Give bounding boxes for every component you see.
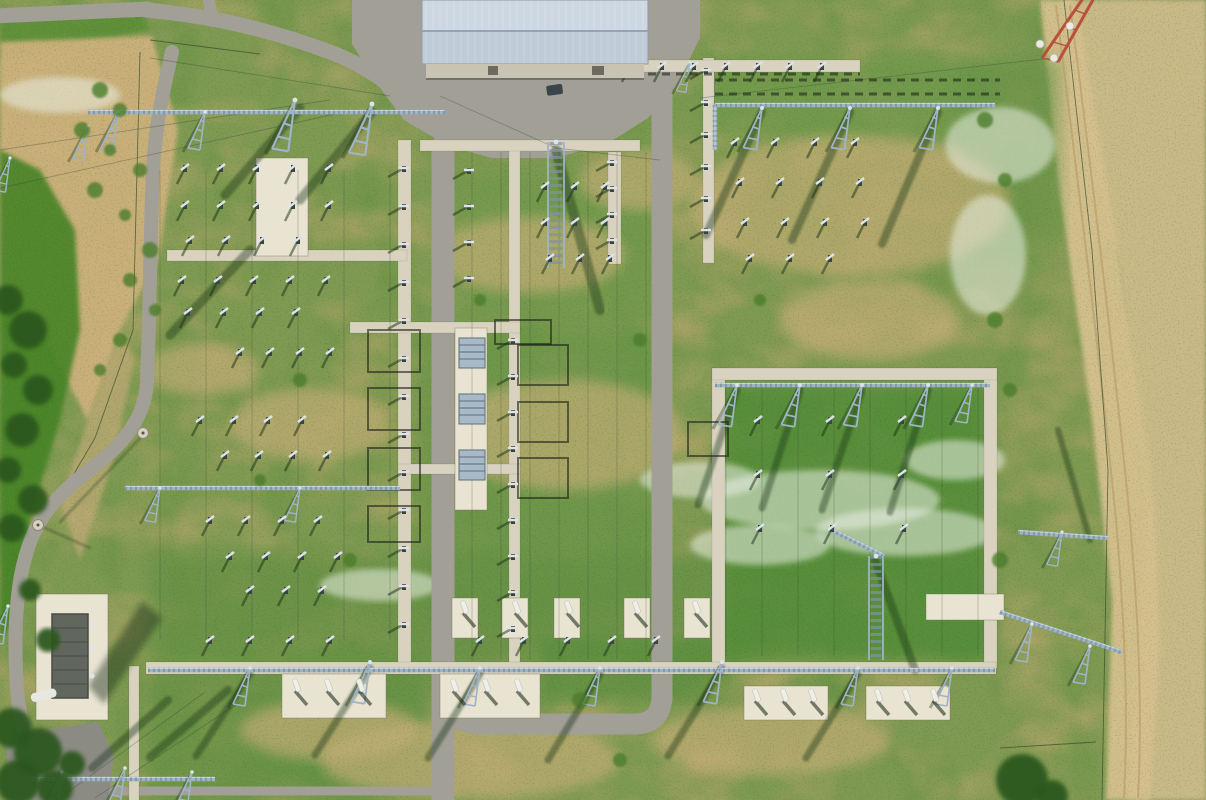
shrub <box>92 82 108 98</box>
mast-apex <box>720 660 724 664</box>
concrete-strip <box>984 368 997 668</box>
tree <box>5 413 39 447</box>
mast-apex <box>248 666 252 670</box>
shrub <box>754 294 766 306</box>
shrub <box>977 112 993 128</box>
shrub <box>94 364 106 376</box>
mast-apex <box>848 106 852 110</box>
tree <box>59 751 85 777</box>
tree <box>9 311 47 349</box>
shrub <box>474 294 486 306</box>
mast-apex <box>689 61 692 64</box>
wildflower-patch <box>950 195 1026 315</box>
mast-apex <box>123 766 127 770</box>
building-roof-south <box>422 31 648 64</box>
shrub <box>104 144 116 156</box>
shrub <box>633 333 647 347</box>
light-pole <box>142 432 145 435</box>
mast-apex <box>798 383 802 387</box>
mast-apex <box>1088 644 1092 648</box>
mast-apex <box>368 660 372 664</box>
shrub <box>613 753 627 767</box>
shrub <box>998 173 1012 187</box>
shrub <box>142 242 158 258</box>
mast-apex <box>190 770 194 774</box>
wildflower-patch <box>945 107 1055 183</box>
shrub <box>987 312 1003 328</box>
mast-apex <box>598 666 602 670</box>
substation-aerial-scene: Aerial drone view of a high-voltage elec… <box>0 0 1206 800</box>
mast-apex <box>478 666 482 670</box>
building-door <box>488 66 498 75</box>
shrub <box>149 304 161 316</box>
mast-apex <box>293 98 298 103</box>
shrub <box>113 333 127 347</box>
mast-apex <box>970 383 974 387</box>
tree <box>23 375 53 405</box>
aerial-photo-substation: Aerial drone view of a high-voltage elec… <box>0 0 1206 800</box>
mast-apex <box>950 666 954 670</box>
bushing <box>90 648 95 653</box>
bushing <box>90 674 95 679</box>
tree <box>19 579 41 601</box>
shrub <box>74 122 90 138</box>
radiator-bank <box>459 450 485 480</box>
concrete-strip <box>712 368 997 380</box>
insulator-disc <box>1050 54 1058 62</box>
building-wall <box>426 64 644 78</box>
mast-apex <box>760 106 764 110</box>
concrete-strip <box>608 152 621 264</box>
shrub <box>87 182 103 198</box>
wildflower-patch <box>320 569 440 601</box>
shrub <box>1003 383 1017 397</box>
light-pole <box>37 524 40 527</box>
mast-apex <box>1060 530 1063 533</box>
mast-apex <box>298 486 301 489</box>
radiator-bank <box>459 394 485 424</box>
shrub <box>254 474 266 486</box>
shrub <box>119 209 131 221</box>
bushing <box>90 622 95 627</box>
tall-mast-top <box>554 140 559 145</box>
shrub <box>133 163 147 177</box>
shrub <box>113 103 127 117</box>
mast-apex <box>158 486 161 489</box>
equipment-pad <box>926 594 1004 620</box>
mast-apex <box>1030 622 1034 626</box>
mast-apex <box>8 156 11 159</box>
road-top-stub <box>208 0 211 12</box>
shrub <box>343 553 357 567</box>
tree <box>36 628 60 652</box>
shrub <box>123 273 137 287</box>
concrete-strip <box>420 140 640 151</box>
mast-apex <box>856 666 860 670</box>
mast-apex <box>370 102 375 107</box>
tree <box>1 352 27 378</box>
mast-apex <box>203 110 207 114</box>
tall-mast-top <box>874 554 879 559</box>
insulator-disc <box>1066 22 1074 30</box>
mast-apex <box>860 383 864 387</box>
mast-apex <box>735 383 739 387</box>
mast-apex <box>6 604 10 608</box>
shrub <box>293 373 307 387</box>
shrub <box>572 692 588 708</box>
tree <box>18 485 48 515</box>
building-roof-north <box>422 0 648 31</box>
building-door <box>592 66 604 75</box>
insulator-disc <box>1036 40 1044 48</box>
road-top-left <box>0 9 148 16</box>
radiator-bank <box>459 338 485 368</box>
mast-apex <box>936 106 940 110</box>
mast-apex <box>926 383 930 387</box>
shrub <box>992 552 1008 568</box>
